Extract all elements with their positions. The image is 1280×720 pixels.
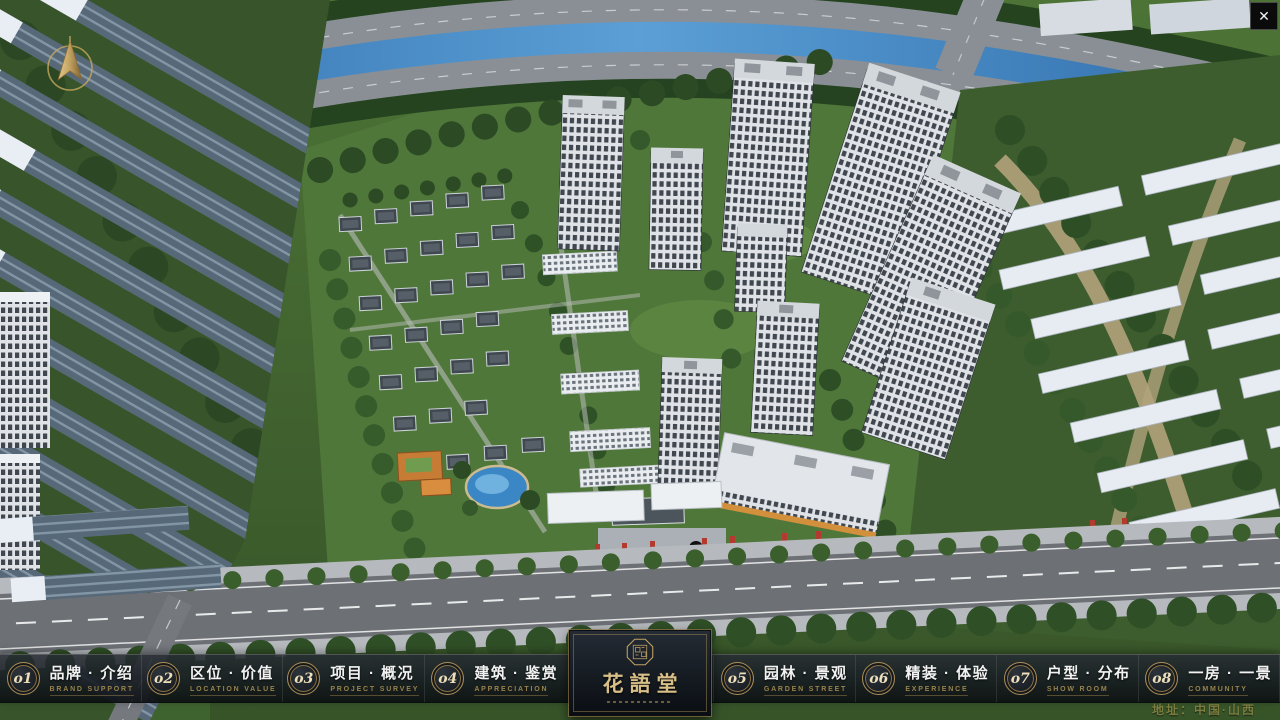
nav-number-badge: o8 — [1145, 662, 1178, 695]
nav-number-badge: o7 — [1004, 662, 1037, 695]
nav-number-badge: o2 — [147, 662, 180, 695]
nav-number-badge: o3 — [287, 662, 320, 695]
3d-aerial-render-viewport[interactable] — [0, 0, 1280, 720]
project-address: 地址：中国·山西 — [1152, 701, 1256, 718]
nav-item-project-overview[interactable]: o3 项目 · 概况 PROJECT SURVEY — [282, 655, 424, 702]
nav-label: 品牌 · 介绍 — [50, 662, 134, 683]
nav-label: 区位 · 价值 — [190, 662, 274, 683]
nav-item-interior-experience[interactable]: o6 精装 · 体验 EXPERIENCE — [855, 655, 997, 702]
nav-sublabel: SHOW ROOM — [1047, 686, 1109, 696]
nav-item-garden-landscape[interactable]: o5 园林 · 景观 GARDEN STREET — [713, 655, 855, 702]
aerial-masterplan-render — [0, 0, 1280, 720]
nav-number-badge: o1 — [7, 662, 40, 695]
nav-number-badge: o6 — [862, 662, 895, 695]
compass-icon — [38, 34, 102, 98]
nav-label: 户型 · 分布 — [1047, 662, 1131, 683]
presentation-window: ✕ o1 品牌 · 介绍 BRAND SUPPORT o2 区位 · 价值 LO… — [0, 0, 1280, 720]
nav-label: 项目 · 概况 — [330, 662, 414, 683]
nav-item-architecture-appreciation[interactable]: o4 建筑 · 鉴赏 APPRECIATION — [424, 655, 566, 702]
nav-number-badge: o5 — [721, 662, 754, 695]
nav-label: 一房 · 一景 — [1188, 662, 1272, 683]
nav-item-location-value[interactable]: o2 区位 · 价值 LOCATION VALUE — [141, 655, 283, 702]
nav-sublabel: EXPERIENCE — [905, 686, 968, 696]
nav-item-floorplan-distribution[interactable]: o7 户型 · 分布 SHOW ROOM — [996, 655, 1138, 702]
brand-logo-panel[interactable]: 花語堂 — [569, 630, 711, 716]
nav-item-room-view[interactable]: o8 一房 · 一景 COMMUNITY — [1138, 655, 1280, 702]
nav-item-brand-intro[interactable]: o1 品牌 · 介绍 BRAND SUPPORT — [0, 655, 141, 702]
nav-sublabel: GARDEN STREET — [764, 686, 847, 696]
nav-sublabel: COMMUNITY — [1188, 686, 1247, 696]
nav-sublabel: APPRECIATION — [474, 686, 548, 696]
close-icon: ✕ — [1258, 9, 1270, 23]
nav-label: 精装 · 体验 — [905, 662, 989, 683]
close-button[interactable]: ✕ — [1250, 2, 1278, 30]
brand-tagline-ornament — [607, 701, 673, 703]
nav-sublabel: PROJECT SURVEY — [330, 686, 419, 696]
nav-label: 建筑 · 鉴赏 — [474, 662, 558, 683]
nav-sublabel: LOCATION VALUE — [190, 686, 276, 696]
nav-label: 园林 · 景观 — [764, 662, 848, 683]
nav-sublabel: BRAND SUPPORT — [50, 686, 134, 696]
brand-name: 花語堂 — [597, 668, 684, 698]
nav-number-badge: o4 — [431, 662, 464, 695]
brand-seal-icon — [625, 637, 655, 667]
